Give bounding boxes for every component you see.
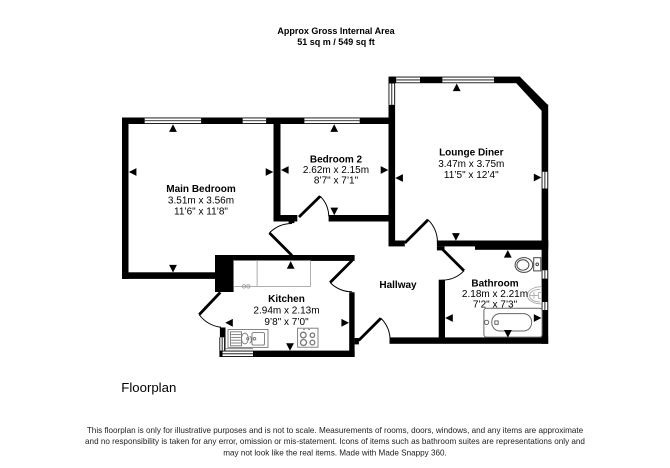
svg-text:may not look like the real ite: may not look like the real items. Made w…: [223, 448, 447, 457]
svg-text:9’8" x 7’0": 9’8" x 7’0": [264, 317, 309, 328]
svg-text:Bathroom: Bathroom: [471, 279, 518, 290]
svg-text:2.94m x 2.13m: 2.94m x 2.13m: [253, 306, 319, 317]
svg-text:3.51m x 3.56m: 3.51m x 3.56m: [168, 195, 234, 206]
svg-text:Kitchen: Kitchen: [268, 294, 305, 305]
svg-text:51 sq m / 549 sq ft: 51 sq m / 549 sq ft: [297, 37, 375, 47]
svg-text:Floorplan: Floorplan: [121, 380, 176, 395]
svg-text:Bedroom 2: Bedroom 2: [310, 154, 363, 165]
svg-text:2.18m x 2.21m: 2.18m x 2.21m: [462, 289, 528, 300]
svg-text:and no responsibility is taken: and no responsibility is taken for any e…: [85, 437, 585, 446]
svg-text:Hallway: Hallway: [379, 280, 417, 291]
svg-text:This floorplan is only for ill: This floorplan is only for illustrative …: [87, 426, 584, 435]
svg-text:Main Bedroom: Main Bedroom: [166, 184, 236, 195]
svg-text:7’2" x 7’3": 7’2" x 7’3": [473, 300, 518, 311]
svg-text:2.62m x 2.15m: 2.62m x 2.15m: [303, 165, 369, 176]
svg-text:Lounge Diner: Lounge Diner: [439, 148, 504, 159]
svg-text:11’5" x 12’4": 11’5" x 12’4": [444, 170, 499, 181]
svg-text:8’7" x 7’1": 8’7" x 7’1": [314, 176, 359, 187]
svg-text:3.47m x 3.75m: 3.47m x 3.75m: [438, 159, 504, 170]
svg-text:11’6" x 11’8": 11’6" x 11’8": [174, 207, 228, 218]
svg-text:Approx Gross Internal Area: Approx Gross Internal Area: [277, 26, 395, 36]
